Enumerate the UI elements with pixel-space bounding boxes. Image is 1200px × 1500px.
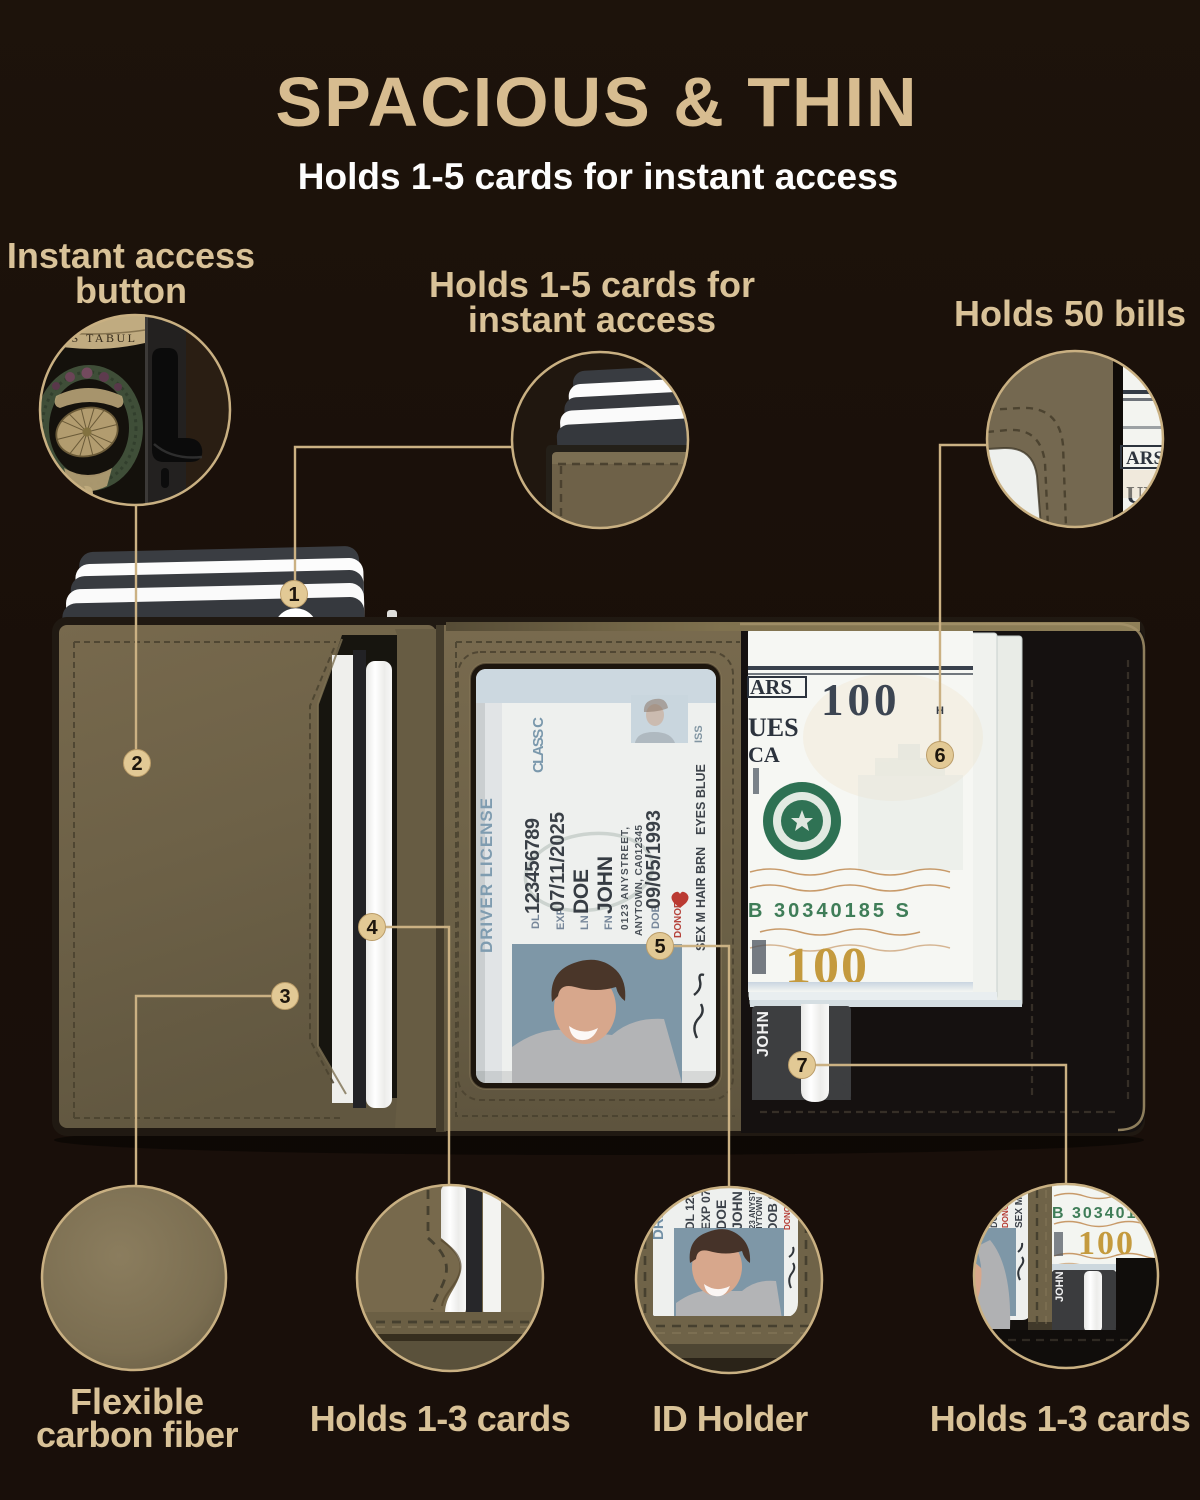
svg-text:DOE: DOE [570,869,593,914]
svg-text:HAIR BRN: HAIR BRN [694,847,708,908]
svg-text:button: button [75,270,187,311]
svg-text:DRIVER LICENSE: DRIVER LICENSE [477,797,496,953]
svg-text:Holds 1-5 cards for instant ac: Holds 1-5 cards for instant access [298,156,898,197]
svg-text:7: 7 [796,1055,807,1077]
svg-text:3: 3 [279,986,290,1008]
svg-text:123456789: 123456789 [522,818,544,914]
svg-text:DL: DL [530,914,542,929]
svg-text:0123 ANYSTREET,: 0123 ANYSTREET, [620,827,631,930]
svg-text:SPACIOUS & THIN: SPACIOUS & THIN [275,63,918,141]
svg-text:09/05/1993: 09/05/1993 [643,810,665,909]
svg-text:instant access: instant access [468,299,716,340]
svg-text:CLASS C: CLASS C [530,717,547,773]
svg-text:JOHN: JOHN [1054,1271,1066,1302]
svg-text:B 30340185 S: B 30340185 S [748,900,912,922]
svg-text:Holds 1-3 cards: Holds 1-3 cards [310,1398,571,1439]
svg-text:ARS: ARS [750,675,792,699]
svg-text:Holds 1-3 cards: Holds 1-3 cards [930,1398,1191,1439]
svg-text:SEX M: SEX M [1014,1197,1025,1228]
svg-text:100: 100 [821,675,901,725]
svg-text:Holds 50 bills: Holds 50 bills [954,293,1186,334]
svg-text:4: 4 [366,917,378,939]
svg-text:07/11/2025: 07/11/2025 [547,812,569,912]
svg-text:100: 100 [1078,1225,1135,1262]
svg-text:1: 1 [288,584,299,606]
svg-text:CA: CA [748,742,780,767]
svg-text:LN: LN [579,915,591,930]
svg-text:ID Holder: ID Holder [652,1398,808,1439]
svg-text:JOHN: JOHN [729,1191,745,1230]
svg-text:5: 5 [654,936,665,958]
svg-text:carbon fiber: carbon fiber [36,1414,239,1455]
svg-text:2: 2 [131,753,142,775]
svg-text:JOHN: JOHN [594,856,617,914]
svg-text:EYES BLUE: EYES BLUE [694,764,708,835]
svg-text:JOHN: JOHN [755,1011,772,1057]
svg-text:6: 6 [934,745,945,767]
svg-text:UES: UES [748,713,799,742]
svg-text:DOE: DOE [713,1200,729,1230]
svg-text:FN: FN [603,915,615,930]
svg-text:ISS: ISS [693,725,705,743]
